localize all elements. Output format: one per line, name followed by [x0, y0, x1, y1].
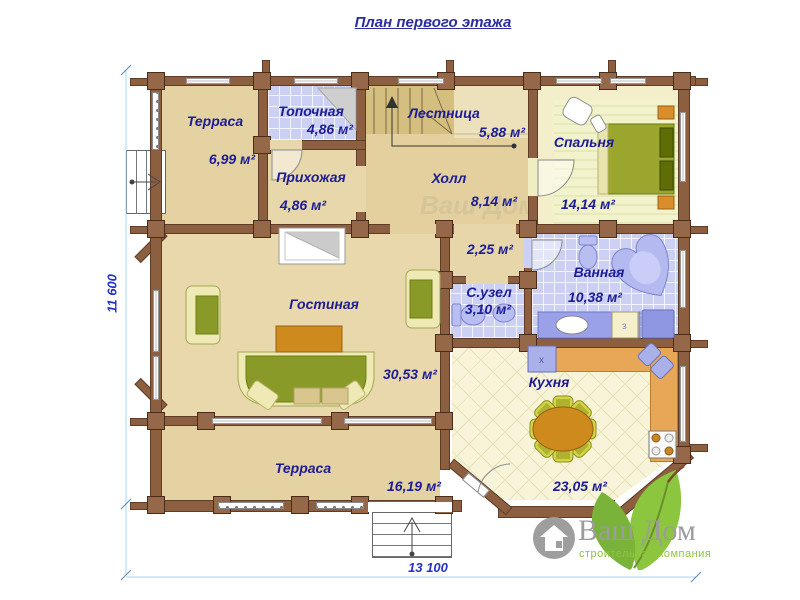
dimension-label-horizontal: 13 100	[408, 560, 448, 575]
dining-table-icon	[533, 407, 593, 451]
dining-set	[530, 396, 596, 462]
room-label-living: Гостиная	[289, 296, 359, 312]
nightstand-icon	[658, 196, 674, 209]
room-area-hall: 8,14 м²	[471, 193, 517, 209]
room-area-boiler: 4,86 м²	[307, 121, 353, 137]
stairs-direction-arrow	[386, 96, 517, 149]
nightstand-icon	[658, 106, 674, 119]
armchair-icon	[186, 286, 220, 344]
sink-icon	[556, 316, 588, 334]
room-label-bedroom: Спальня	[554, 134, 614, 150]
room-area-bathroom: 10,38 м²	[568, 289, 622, 305]
room-area-terrace-bottom: 16,19 м²	[387, 478, 441, 494]
sofa-icon	[238, 352, 374, 411]
stove-icon	[649, 431, 676, 458]
room-label-kitchen: Кухня	[529, 374, 570, 390]
room-area-wc: 3,10 м²	[465, 301, 511, 317]
room-area-entry-hall: 4,86 м²	[280, 197, 326, 213]
logo-company-name: Ваш Дом	[578, 514, 696, 548]
dishwasher-icon: x	[528, 346, 556, 372]
bathroom-cabinet: з	[612, 312, 638, 338]
coffee-table-icon	[276, 326, 342, 352]
fireplace-icon	[279, 228, 345, 264]
dimension-label-vertical: 11 600	[105, 264, 120, 324]
room-area-bedroom: 14,14 м²	[561, 196, 615, 212]
room-label-wc: С.узел	[466, 284, 512, 300]
room-area-corridor: 2,25 м²	[467, 241, 513, 257]
appliance-label: x	[539, 355, 544, 366]
logo-company-subtitle: строительная компания	[579, 548, 711, 560]
kitchen-sink-icon	[637, 342, 674, 379]
chair-icon	[561, 95, 607, 133]
washing-machine-icon	[642, 310, 674, 338]
room-label-boiler: Топочная	[278, 103, 344, 119]
room-label-terrace-bottom: Терраса	[275, 460, 331, 476]
room-label-hall: Холл	[432, 170, 467, 186]
armchair-icon	[406, 270, 440, 328]
logo-house-icon	[533, 517, 575, 559]
cabinet-label: з	[622, 321, 627, 332]
room-label-entry-hall: Прихожая	[276, 169, 346, 185]
room-label-stairs: Лестница	[408, 105, 479, 121]
room-label-terrace-top: Терраса	[187, 113, 243, 129]
room-area-terrace-top: 6,99 м²	[209, 151, 255, 167]
page-title: План первого этажа	[355, 14, 512, 31]
room-label-bathroom: Ванная	[574, 264, 625, 280]
room-area-living: 30,53 м²	[383, 366, 437, 382]
room-area-stairs: 5,88 м²	[479, 124, 525, 140]
